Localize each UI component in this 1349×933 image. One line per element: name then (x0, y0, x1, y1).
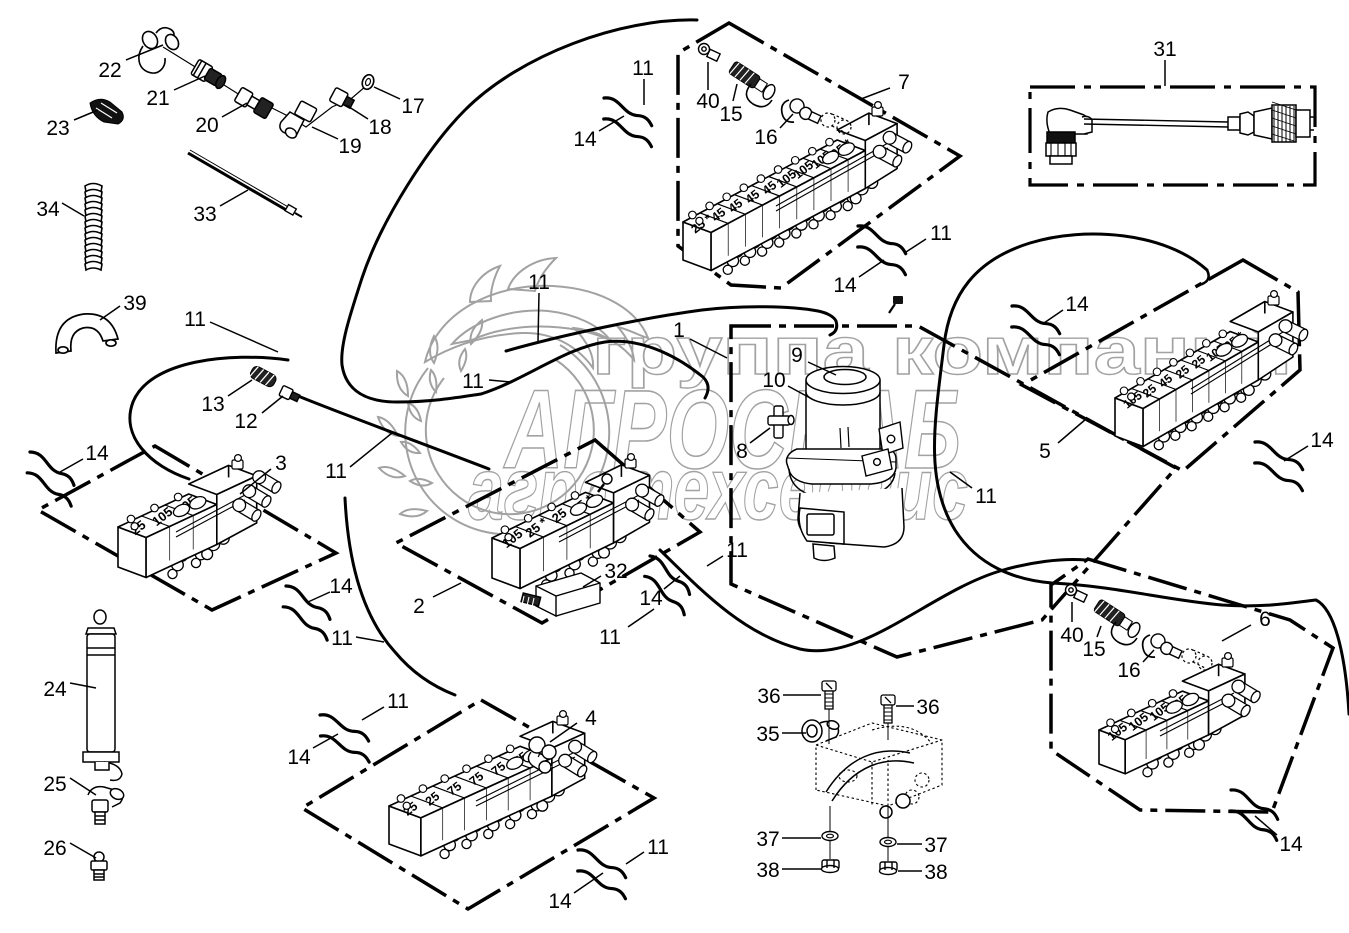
svg-text:17: 17 (401, 95, 424, 118)
svg-text:4: 4 (585, 707, 597, 730)
svg-text:1: 1 (673, 319, 685, 342)
svg-text:14: 14 (1065, 293, 1089, 316)
svg-text:35: 35 (756, 723, 779, 746)
svg-text:18: 18 (368, 116, 391, 139)
svg-text:38: 38 (756, 859, 779, 882)
svg-text:36: 36 (916, 696, 939, 719)
svg-text:37: 37 (756, 828, 779, 851)
svg-text:14: 14 (573, 128, 597, 151)
svg-text:7: 7 (898, 71, 910, 94)
svg-text:36: 36 (757, 685, 780, 708)
svg-text:31: 31 (1153, 38, 1176, 61)
svg-text:32: 32 (604, 560, 627, 583)
svg-text:37: 37 (924, 834, 947, 857)
svg-text:11: 11 (331, 627, 353, 650)
svg-text:40: 40 (696, 90, 719, 113)
svg-text:15: 15 (719, 103, 742, 126)
svg-text:11: 11 (975, 485, 997, 508)
svg-text:20: 20 (195, 114, 218, 137)
svg-text:3: 3 (275, 452, 287, 475)
svg-text:11: 11 (930, 222, 952, 245)
svg-text:40: 40 (1060, 624, 1083, 647)
svg-text:6: 6 (1259, 608, 1271, 631)
svg-text:5: 5 (1039, 440, 1051, 463)
svg-text:25: 25 (43, 773, 66, 796)
svg-text:14: 14 (833, 274, 857, 297)
svg-text:12: 12 (234, 410, 257, 433)
svg-text:11: 11 (726, 539, 748, 562)
svg-text:39: 39 (123, 292, 146, 315)
svg-text:14: 14 (548, 890, 572, 913)
svg-text:33: 33 (193, 203, 216, 226)
svg-text:11: 11 (462, 370, 484, 393)
svg-text:34: 34 (36, 198, 60, 221)
svg-text:19: 19 (338, 135, 361, 158)
svg-text:8: 8 (736, 440, 748, 463)
svg-text:14: 14 (287, 746, 311, 769)
svg-text:14: 14 (85, 442, 109, 465)
svg-text:23: 23 (46, 117, 69, 140)
svg-text:21: 21 (146, 87, 169, 110)
svg-text:11: 11 (647, 836, 669, 859)
svg-text:16: 16 (1117, 659, 1140, 682)
svg-text:11: 11 (184, 308, 206, 331)
svg-text:24: 24 (43, 678, 67, 701)
svg-text:9: 9 (791, 344, 803, 367)
svg-text:22: 22 (98, 59, 121, 82)
svg-text:2: 2 (413, 595, 425, 618)
svg-text:10: 10 (762, 369, 785, 392)
svg-text:16: 16 (754, 126, 777, 149)
svg-text:11: 11 (387, 690, 409, 713)
svg-text:11: 11 (632, 57, 654, 80)
svg-text:26: 26 (43, 837, 66, 860)
svg-text:14: 14 (1310, 429, 1334, 452)
svg-text:14: 14 (1279, 833, 1303, 856)
svg-text:14: 14 (639, 587, 663, 610)
svg-text:11: 11 (599, 626, 621, 649)
svg-text:15: 15 (1082, 638, 1105, 661)
svg-text:13: 13 (201, 393, 224, 416)
svg-text:11: 11 (528, 271, 550, 294)
svg-text:38: 38 (924, 861, 947, 884)
svg-text:11: 11 (325, 460, 347, 483)
svg-text:14: 14 (329, 575, 353, 598)
